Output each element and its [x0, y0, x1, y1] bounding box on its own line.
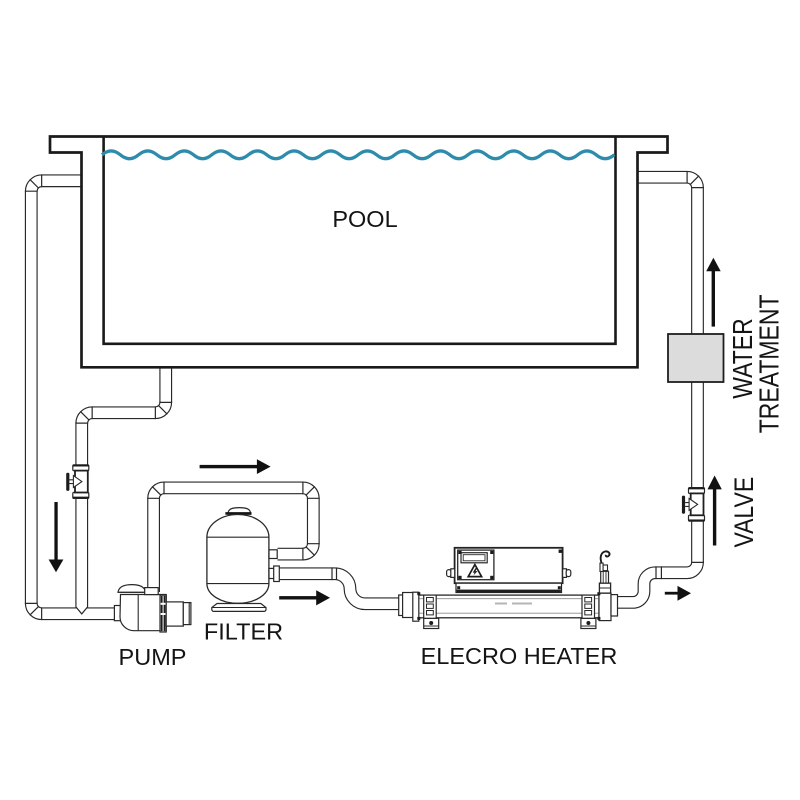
svg-text:POOL: POOL	[332, 206, 397, 232]
svg-text:PUMP: PUMP	[119, 644, 187, 670]
svg-text:TREATMENT: TREATMENT	[754, 295, 785, 434]
svg-text:FILTER: FILTER	[204, 619, 283, 645]
svg-text:ELECRO HEATER: ELECRO HEATER	[421, 643, 618, 669]
svg-text:VALVE: VALVE	[729, 477, 759, 548]
